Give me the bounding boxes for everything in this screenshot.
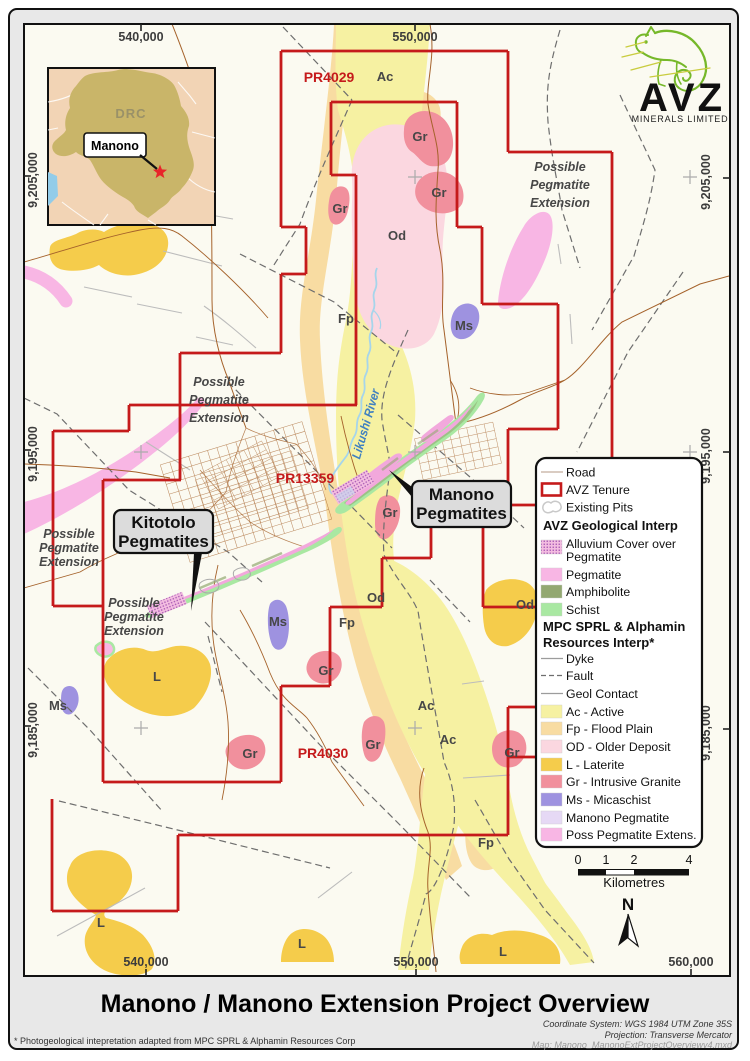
- svg-text:DRC: DRC: [115, 106, 146, 121]
- svg-text:MPC SPRL & Alphamin: MPC SPRL & Alphamin: [543, 619, 685, 634]
- svg-text:Extension: Extension: [189, 411, 249, 425]
- svg-text:Ms: Ms: [269, 614, 287, 629]
- svg-text:Fp: Fp: [478, 835, 494, 850]
- svg-text:Gr: Gr: [318, 663, 333, 678]
- svg-text:9,195,000: 9,195,000: [26, 426, 40, 482]
- svg-text:Pegmatite: Pegmatite: [566, 550, 622, 564]
- svg-text:MINERALS LIMITED: MINERALS LIMITED: [632, 114, 729, 124]
- svg-text:Ac - Active: Ac - Active: [566, 705, 624, 719]
- svg-text:Resources Interp*: Resources Interp*: [543, 635, 655, 650]
- svg-text:Amphibolite: Amphibolite: [566, 585, 630, 599]
- svg-text:Pegmatite: Pegmatite: [39, 541, 99, 555]
- svg-text:L: L: [499, 944, 507, 959]
- svg-text:Ac: Ac: [377, 69, 394, 84]
- svg-text:L: L: [298, 936, 306, 951]
- svg-text:Ac: Ac: [418, 698, 435, 713]
- svg-text:Ac: Ac: [440, 732, 457, 747]
- svg-text:Ms - Micaschist: Ms - Micaschist: [566, 793, 651, 807]
- svg-text:Gr: Gr: [382, 505, 397, 520]
- svg-text:Possible: Possible: [193, 375, 244, 389]
- svg-text:Manono: Manono: [91, 139, 139, 153]
- svg-text:9,205,000: 9,205,000: [699, 154, 713, 210]
- svg-text:L: L: [153, 669, 161, 684]
- svg-text:9,185,000: 9,185,000: [26, 702, 40, 758]
- svg-text:Ms: Ms: [49, 698, 67, 713]
- svg-text:4: 4: [686, 853, 693, 867]
- svg-text:Pegmatites: Pegmatites: [416, 504, 507, 523]
- svg-text:Possible: Possible: [108, 596, 159, 610]
- svg-text:540,000: 540,000: [118, 30, 163, 44]
- svg-text:Geol Contact: Geol Contact: [566, 687, 638, 701]
- svg-text:1: 1: [603, 853, 610, 867]
- svg-text:Gr: Gr: [332, 201, 347, 216]
- svg-text:2: 2: [631, 853, 638, 867]
- svg-text:Gr: Gr: [365, 737, 380, 752]
- svg-text:Possible: Possible: [534, 160, 585, 174]
- svg-text:PR4030: PR4030: [298, 745, 349, 761]
- svg-text:Existing Pits: Existing Pits: [566, 500, 633, 514]
- svg-text:9,205,000: 9,205,000: [26, 152, 40, 208]
- svg-text:0: 0: [575, 853, 582, 867]
- svg-text:550,000: 550,000: [393, 955, 438, 969]
- svg-text:Gr: Gr: [431, 185, 446, 200]
- svg-text:Pegmatite: Pegmatite: [104, 610, 164, 624]
- svg-text:Dyke: Dyke: [566, 652, 594, 666]
- svg-text:OD - Older Deposit: OD - Older Deposit: [566, 740, 671, 754]
- svg-text:L - Laterite: L - Laterite: [566, 758, 624, 772]
- svg-text:Road: Road: [566, 465, 596, 479]
- svg-text:Pegmatite: Pegmatite: [530, 178, 590, 192]
- svg-text:550,000: 550,000: [392, 30, 437, 44]
- svg-text:Ms: Ms: [455, 318, 473, 333]
- svg-text:Extension: Extension: [530, 196, 590, 210]
- svg-text:Od: Od: [516, 597, 534, 612]
- svg-text:Gr - Intrusive Granite: Gr - Intrusive Granite: [566, 775, 681, 789]
- svg-text:AVZ Tenure: AVZ Tenure: [566, 483, 630, 497]
- svg-text:540,000: 540,000: [123, 955, 168, 969]
- svg-text:Od: Od: [367, 590, 385, 605]
- svg-text:Pegmatite: Pegmatite: [566, 568, 622, 582]
- svg-text:Gr: Gr: [412, 129, 427, 144]
- svg-text:Kilometres: Kilometres: [603, 875, 665, 890]
- svg-text:Pegmatites: Pegmatites: [118, 532, 209, 551]
- svg-text:L: L: [97, 915, 105, 930]
- svg-text:Gr: Gr: [242, 746, 257, 761]
- svg-text:560,000: 560,000: [668, 955, 713, 969]
- svg-text:Alluvium Cover over: Alluvium Cover over: [566, 537, 676, 551]
- svg-text:Fp - Flood Plain: Fp - Flood Plain: [566, 722, 653, 736]
- svg-text:Manono: Manono: [429, 485, 494, 504]
- svg-text:PR13359: PR13359: [276, 470, 335, 486]
- svg-text:Pegmatite: Pegmatite: [189, 393, 249, 407]
- svg-text:Fp: Fp: [338, 311, 354, 326]
- svg-text:PR4029: PR4029: [304, 69, 355, 85]
- svg-text:Od: Od: [388, 228, 406, 243]
- svg-text:Manono Pegmatite: Manono Pegmatite: [566, 811, 669, 825]
- svg-text:Possible: Possible: [43, 527, 94, 541]
- svg-text:Kitotolo: Kitotolo: [131, 513, 195, 532]
- svg-text:Extension: Extension: [104, 624, 164, 638]
- svg-text:Extension: Extension: [39, 555, 99, 569]
- svg-text:Poss Pegmatite Extens.: Poss Pegmatite Extens.: [566, 828, 697, 842]
- svg-text:N: N: [622, 895, 634, 914]
- svg-text:Schist: Schist: [566, 603, 600, 617]
- svg-text:Fault: Fault: [566, 669, 594, 683]
- svg-text:Fp: Fp: [339, 615, 355, 630]
- svg-text:AVZ Geological Interp: AVZ Geological Interp: [543, 518, 678, 533]
- svg-text:Gr: Gr: [504, 745, 519, 760]
